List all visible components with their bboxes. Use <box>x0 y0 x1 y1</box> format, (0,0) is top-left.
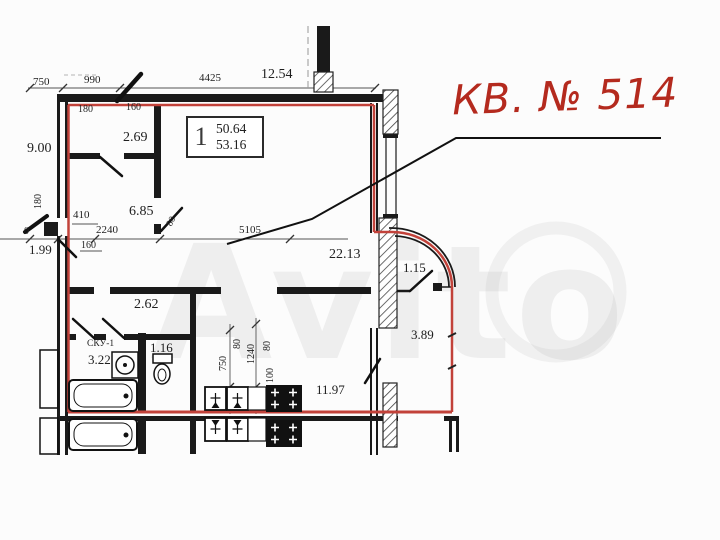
room-label-sku: СКУ-1 <box>87 340 114 350</box>
watermark-ring <box>492 228 620 356</box>
dim-label-5105: 5105 <box>239 225 261 236</box>
dim-label-2240: 2240 <box>96 225 118 236</box>
dim-label-9-00: 9.00 <box>27 142 52 156</box>
kitchen-sinks <box>205 387 266 441</box>
floor-plan-screenshot: Avito <box>0 0 720 540</box>
dim-label-750-top: 750 <box>33 77 50 88</box>
unit-area-living: 50.64 <box>216 121 246 137</box>
dim-label-kitchen-100: 100 <box>266 368 276 383</box>
washing-machine <box>112 352 138 378</box>
dim-label-4425: 4425 <box>199 73 221 84</box>
room-area-6-85: 6.85 <box>129 205 154 219</box>
dim-label-kitchen-80b: 80 <box>263 341 273 351</box>
room-area-3-22: 3.22 <box>88 353 111 366</box>
dim-label-lintel-180: 180 <box>78 105 93 115</box>
dim-label-kitchen-80a: 80 <box>233 339 243 349</box>
unit-info-box: 1 50.64 53.16 <box>186 116 264 158</box>
room-area-3-89: 3.89 <box>411 328 434 341</box>
shaft-boxes <box>40 350 58 454</box>
dim-label-12-54: 12.54 <box>261 68 293 82</box>
room-area-1-15: 1.15 <box>403 261 426 274</box>
dim-label-990: 990 <box>84 75 101 86</box>
room-area-2-69: 2.69 <box>123 131 148 145</box>
toilet <box>153 354 172 384</box>
dim-label-kitchen-750: 750 <box>219 356 229 371</box>
room-area-2-62: 2.62 <box>134 298 159 312</box>
dim-label-160: 160 <box>81 241 96 251</box>
unit-area-total: 53.16 <box>216 137 246 153</box>
bathtub-fixtures <box>69 380 137 450</box>
dim-label-kitchen-1240: 1240 <box>247 344 257 364</box>
room-area-11-97: 11.97 <box>316 383 345 396</box>
room-area-22-13: 22.13 <box>329 248 361 262</box>
dim-label-zero: 0 <box>24 227 29 237</box>
apartment-number-title: КВ. № 514 <box>451 68 703 125</box>
dim-label-1-99: 1.99 <box>29 243 52 256</box>
dim-label-lintel-160: 160 <box>126 103 141 113</box>
dim-label-180-vertical: 180 <box>34 194 44 209</box>
title-leader-line <box>227 138 661 244</box>
room-area-1-16: 1.16 <box>150 341 173 354</box>
dim-label-410: 410 <box>73 210 90 221</box>
unit-number: 1 <box>188 122 214 152</box>
